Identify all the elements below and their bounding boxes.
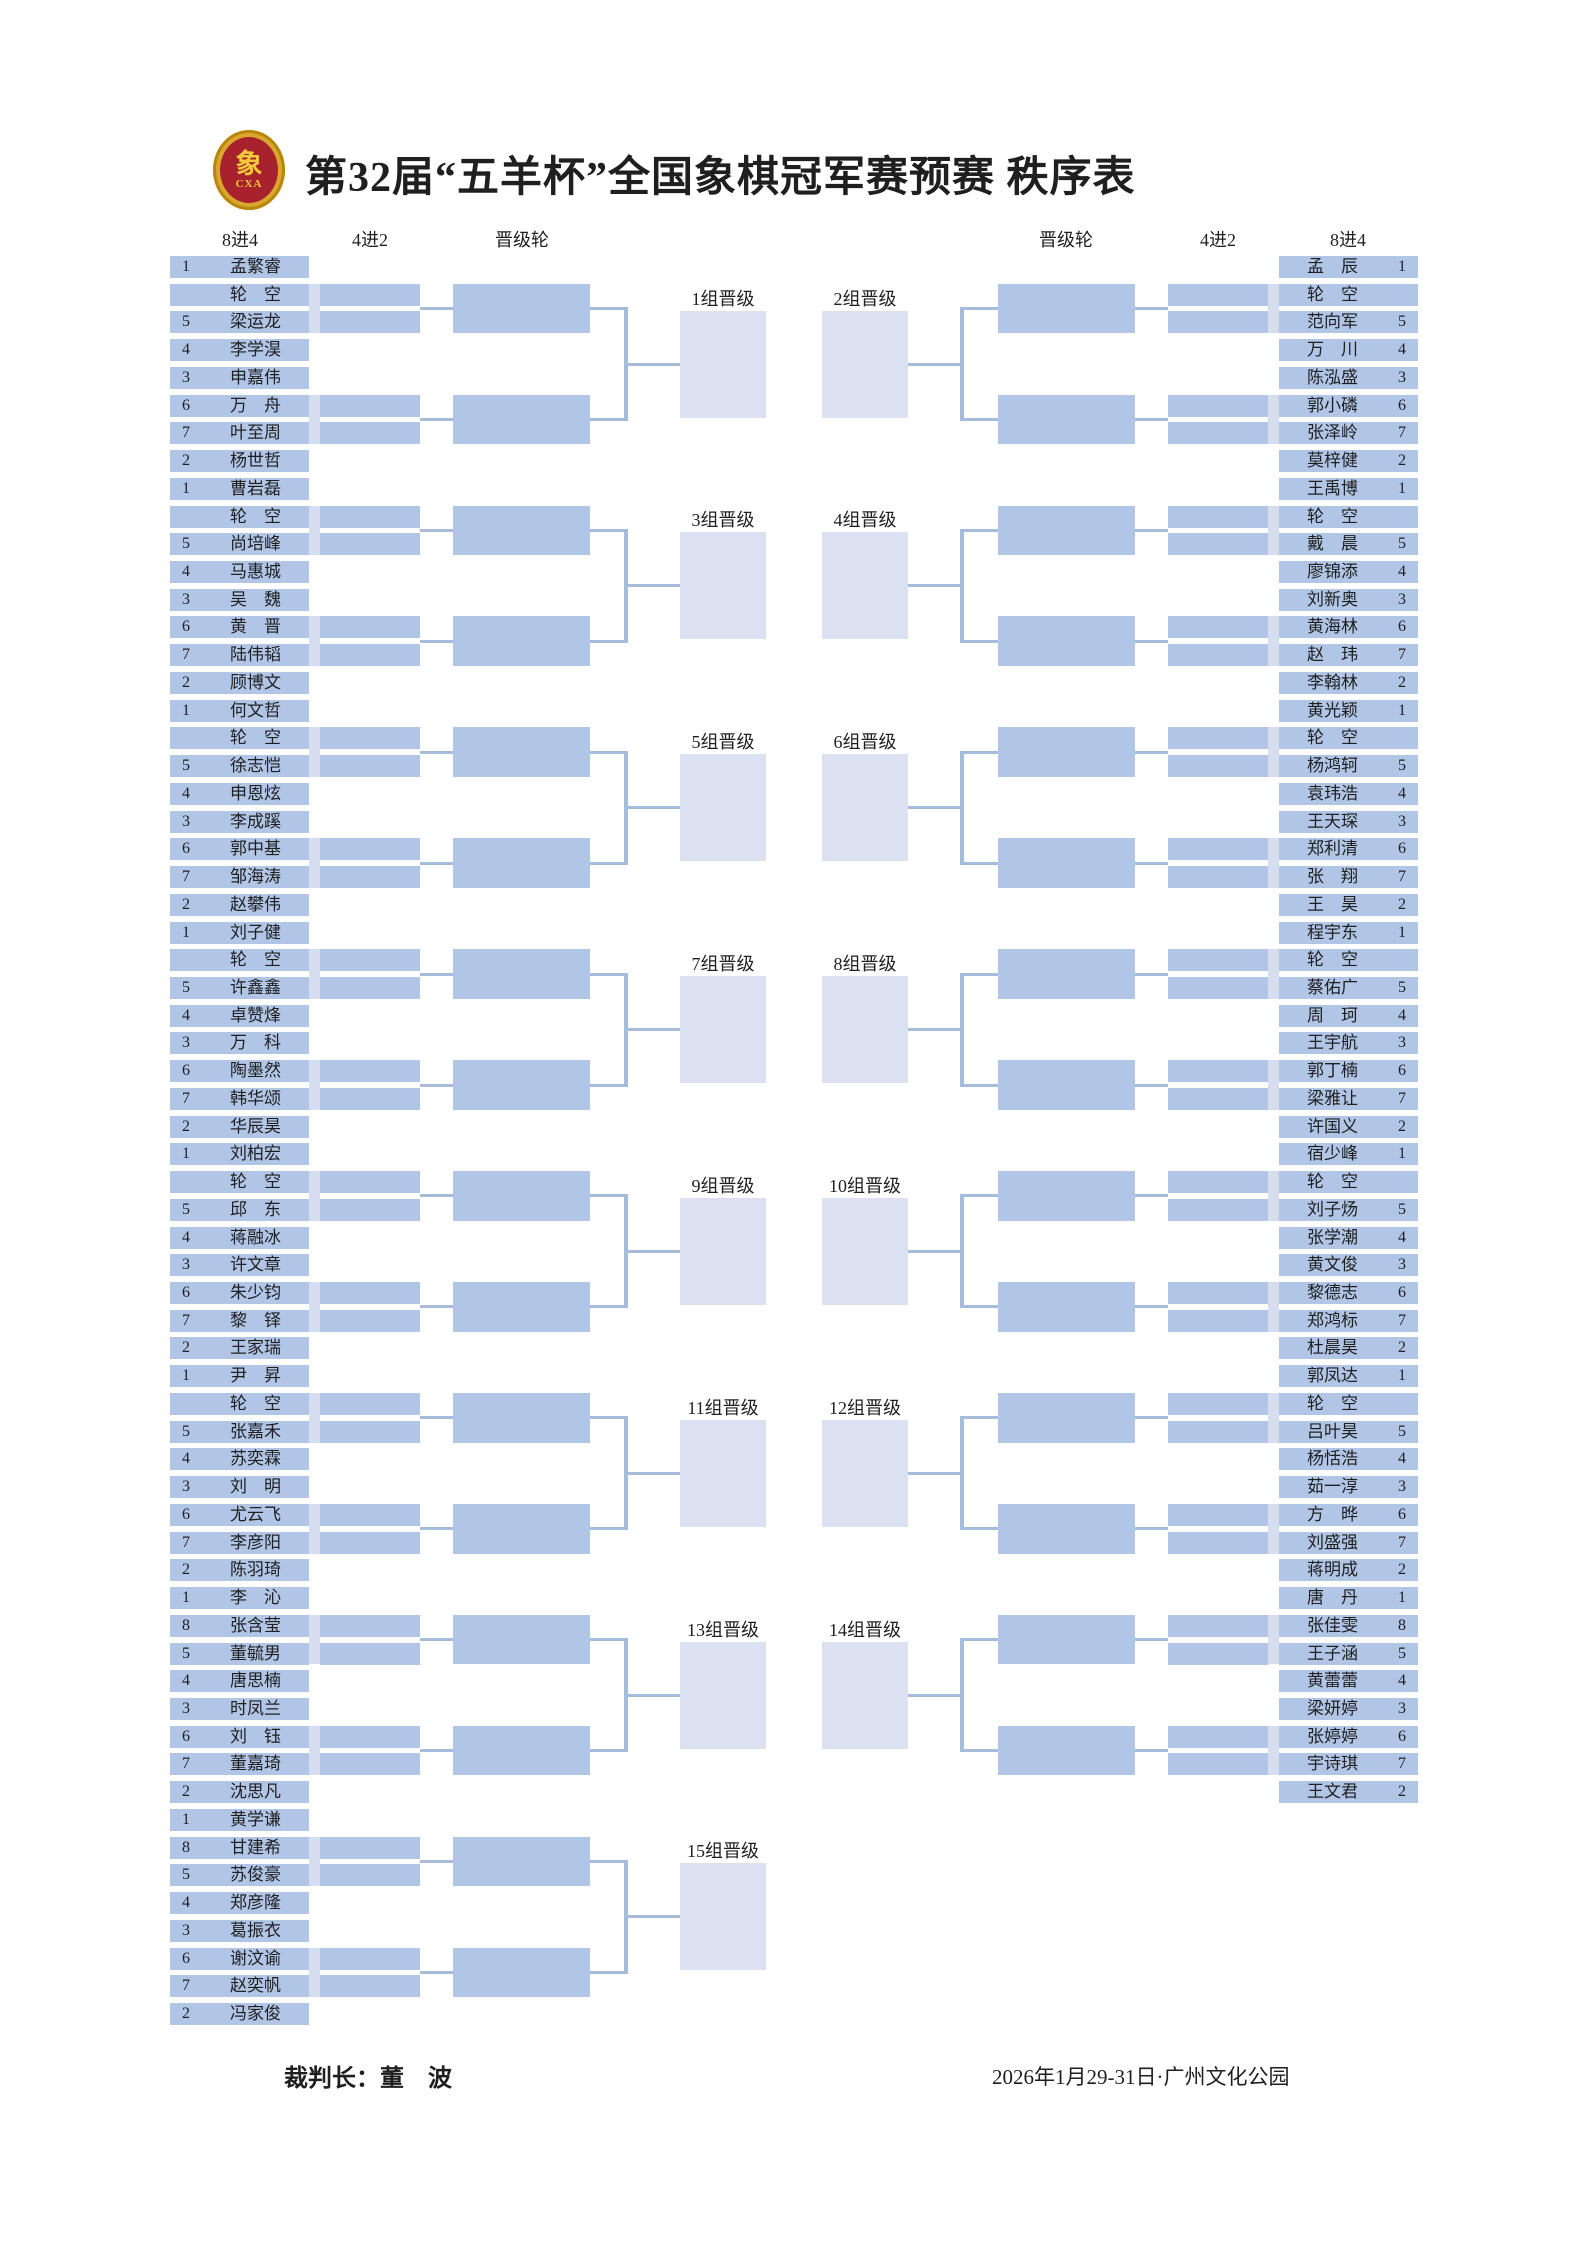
player-cell: 轮 空 [1279,1393,1418,1415]
seed-number: 5 [1386,1421,1418,1443]
pair-boundary-line [420,1305,453,1308]
player-cell: 范向军5 [1279,311,1418,333]
player-cell: 6万 舟 [170,395,309,417]
player-cell: 3吴 魏 [170,589,309,611]
player-cell: 蔡佑广5 [1279,977,1418,999]
round2-bar [320,1282,420,1304]
player-name: 华辰昊 [202,1116,309,1138]
round2-bar [320,284,420,306]
seed-number: 5 [1386,533,1418,555]
player-cell: 唐 丹1 [1279,1587,1418,1609]
semi-connector-line [960,418,998,421]
pair-boundary-line [1135,1749,1168,1752]
semi-connector-line [590,1416,628,1419]
seed-number: 1 [1386,256,1418,278]
player-name: 唐思楠 [202,1670,309,1692]
pair-boundary-line [1135,973,1168,976]
semi-connector-line [960,1527,998,1530]
player-name: 谢汶谕 [202,1948,309,1970]
box-connector-line [908,1694,960,1697]
semi-connector-line [960,1305,998,1308]
seed-number: 7 [1386,866,1418,888]
seed-number: 8 [1386,1615,1418,1637]
round3-bar [453,1837,590,1887]
pair-connector-stub [309,1393,320,1443]
pair-connector-stub [1268,616,1279,666]
seed-number: 4 [1386,1005,1418,1027]
round3-bar [453,506,590,556]
round2-bar [320,866,420,888]
box-connector-line [628,584,680,587]
player-cell: 郭小磷6 [1279,395,1418,417]
box-connector-line [908,1250,960,1253]
seed-number: 3 [170,367,202,389]
player-name: 轮 空 [202,506,309,528]
box-connector-line [628,1250,680,1253]
player-cell: 袁玮浩4 [1279,783,1418,805]
round2-bar [320,506,420,528]
player-cell: 王宇航3 [1279,1032,1418,1054]
player-name: 张 翔 [1279,866,1386,888]
player-name: 万 科 [202,1032,309,1054]
round2-bar [1168,1199,1268,1221]
seed-number: 6 [1386,838,1418,860]
player-cell: 7董嘉琦 [170,1753,309,1775]
pair-boundary-line [420,529,453,532]
round3-bar [453,727,590,777]
seed-number: 5 [170,977,202,999]
player-cell: 轮 空 [170,727,309,749]
header-right-8to4: 8进4 [1330,226,1366,252]
player-cell: 3时凤兰 [170,1698,309,1720]
seed-number: 7 [1386,1753,1418,1775]
pair-boundary-line [1135,307,1168,310]
bracket-vertical-line [960,1638,964,1752]
player-name: 沈思凡 [202,1781,309,1803]
seed-number: 2 [1386,1781,1418,1803]
pair-connector-stub [1268,1615,1279,1665]
player-name: 尤云飞 [202,1504,309,1526]
pair-boundary-line [420,418,453,421]
player-cell: 张 翔7 [1279,866,1418,888]
round2-bar [1168,866,1268,888]
pair-boundary-line [420,1638,453,1641]
player-cell: 2冯家俊 [170,2003,309,2025]
semi-connector-line [960,640,998,643]
round2-bar [1168,1532,1268,1554]
round2-bar [320,1837,420,1859]
player-name: 刘子炀 [1279,1199,1386,1221]
seed-number: 7 [1386,1532,1418,1554]
seed-number: 3 [1386,1698,1418,1720]
round2-bar [1168,1421,1268,1443]
player-cell: 6黄 晋 [170,616,309,638]
advance-label: 1组晋级 [653,285,793,311]
player-name: 许国义 [1279,1116,1386,1138]
box-connector-line [628,1915,680,1918]
round2-bar [320,838,420,860]
round2-bar [1168,1282,1268,1304]
player-cell: 郭丁楠6 [1279,1060,1418,1082]
player-cell: 6谢汶谕 [170,1948,309,1970]
pair-connector-stub [309,1171,320,1221]
pair-boundary-line [1135,1084,1168,1087]
box-connector-line [908,806,960,809]
player-cell: 6陶墨然 [170,1060,309,1082]
player-cell: 8甘建希 [170,1837,309,1859]
player-cell: 轮 空 [170,506,309,528]
player-cell: 2沈思凡 [170,1781,309,1803]
round3-bar [998,838,1135,888]
player-cell: 4蒋融冰 [170,1227,309,1249]
box-connector-line [908,1028,960,1031]
player-name: 黄 晋 [202,616,309,638]
round2-bar [1168,506,1268,528]
player-name: 许鑫鑫 [202,977,309,999]
player-name: 王子涵 [1279,1643,1386,1665]
player-cell: 周 珂4 [1279,1005,1418,1027]
player-cell: 轮 空 [1279,284,1418,306]
advance-box [680,1642,766,1749]
round2-bar [320,727,420,749]
round2-bar [1168,1060,1268,1082]
player-cell: 1黄学谦 [170,1809,309,1831]
pair-connector-stub [309,284,320,334]
player-name: 杨世哲 [202,450,309,472]
player-name: 轮 空 [202,284,309,306]
advance-box [680,532,766,639]
player-name: 黎德志 [1279,1282,1386,1304]
player-cell: 6朱少钧 [170,1282,309,1304]
round3-bar [453,1171,590,1221]
player-cell: 王禹博1 [1279,478,1418,500]
player-name: 宇诗琪 [1279,1753,1386,1775]
advance-label: 10组晋级 [795,1172,935,1198]
pair-boundary-line [420,307,453,310]
seed-number: 5 [1386,311,1418,333]
player-cell: 7陆伟韬 [170,644,309,666]
player-name: 郑鸿标 [1279,1310,1386,1332]
seed-number: 7 [170,1310,202,1332]
seed-number: 3 [1386,1254,1418,1276]
advance-label: 4组晋级 [795,506,935,532]
player-name: 宿少峰 [1279,1143,1386,1165]
round3-bar [998,284,1135,334]
pair-connector-stub [309,1837,320,1887]
advance-label: 6组晋级 [795,728,935,754]
round3-bar [998,616,1135,666]
player-name: 董嘉琦 [202,1753,309,1775]
pair-boundary-line [1135,1638,1168,1641]
advance-box [680,754,766,861]
player-name: 李成蹊 [202,811,309,833]
pair-boundary-line [1135,1416,1168,1419]
seed-number: 6 [170,1726,202,1748]
player-cell: 杜晨昊2 [1279,1337,1418,1359]
player-name: 黄海林 [1279,616,1386,638]
player-name: 轮 空 [1279,949,1386,971]
pair-boundary-line [420,1860,453,1863]
advance-label: 3组晋级 [653,506,793,532]
semi-connector-line [960,1416,998,1419]
round2-bar [320,1060,420,1082]
round2-bar [1168,1171,1268,1193]
round2-bar [1168,284,1268,306]
seed-number: 2 [170,1781,202,1803]
seed-number: 6 [170,1282,202,1304]
advance-box [822,532,908,639]
pair-connector-stub [309,616,320,666]
advance-box [680,1863,766,1970]
player-cell: 陈泓盛3 [1279,367,1418,389]
player-name: 赵 玮 [1279,644,1386,666]
seed-number: 3 [1386,589,1418,611]
player-cell: 3刘 明 [170,1476,309,1498]
player-cell: 1孟繁睿 [170,256,309,278]
player-cell: 莫梓健2 [1279,450,1418,472]
seed-number: 1 [170,256,202,278]
player-name: 申嘉伟 [202,367,309,389]
player-cell: 吕叶昊5 [1279,1421,1418,1443]
seed-number: 3 [170,811,202,833]
seed-number: 6 [1386,1726,1418,1748]
player-name: 苏奕霖 [202,1448,309,1470]
player-cell: 1何文哲 [170,700,309,722]
semi-connector-line [960,973,998,976]
player-cell: 李翰林2 [1279,672,1418,694]
seed-number: 2 [170,1559,202,1581]
pair-connector-stub [309,1948,320,1998]
player-name: 陶墨然 [202,1060,309,1082]
pair-boundary-line [1135,1527,1168,1530]
seed-number: 2 [1386,1559,1418,1581]
seed-number: 4 [170,1227,202,1249]
round3-bar [453,1948,590,1998]
round2-bar [1168,1643,1268,1665]
seed-number: 4 [170,561,202,583]
semi-connector-line [960,529,998,532]
semi-connector-line [960,1638,998,1641]
player-cell: 轮 空 [1279,949,1418,971]
round2-bar [1168,1310,1268,1332]
player-name: 王宇航 [1279,1032,1386,1054]
pair-connector-stub [309,1615,320,1665]
player-name: 袁玮浩 [1279,783,1386,805]
cxa-logo-inner: 象 CXA [220,137,278,203]
semi-connector-line [590,418,628,421]
pair-connector-stub [309,1726,320,1776]
seed-number: 6 [170,1504,202,1526]
player-name: 蔡佑广 [1279,977,1386,999]
page-title: 第32届“五羊杯”全国象棋冠军赛预赛 秩序表 [305,143,1285,204]
player-name: 李学淏 [202,339,309,361]
pair-boundary-line [420,1416,453,1419]
round2-bar [320,1199,420,1221]
player-name: 徐志恺 [202,755,309,777]
seed-number: 6 [170,1060,202,1082]
round3-bar [998,727,1135,777]
round2-bar [320,755,420,777]
player-name: 刘 明 [202,1476,309,1498]
round2-bar [320,1975,420,1997]
player-name: 郭中基 [202,838,309,860]
player-name: 黄学谦 [202,1809,309,1831]
player-name: 万 舟 [202,395,309,417]
player-cell: 黄蕾蕾4 [1279,1670,1418,1692]
player-cell: 茹一淳3 [1279,1476,1418,1498]
player-cell: 6郭中基 [170,838,309,860]
semi-connector-line [590,1749,628,1752]
advance-box [680,1420,766,1527]
seed-number: 2 [170,672,202,694]
seed-number: 6 [1386,1504,1418,1526]
pair-connector-stub [309,1282,320,1332]
seed-number: 7 [170,644,202,666]
seed-number: 7 [170,1532,202,1554]
pair-connector-stub [309,1504,320,1554]
player-name: 方 晔 [1279,1504,1386,1526]
cxa-logo: 象 CXA [213,130,285,210]
seed-number: 5 [170,1864,202,1886]
player-cell: 3葛振衣 [170,1920,309,1942]
pair-connector-stub [309,506,320,556]
seed-number: 6 [1386,616,1418,638]
seed-number: 1 [170,700,202,722]
player-cell: 王天琛3 [1279,811,1418,833]
player-cell: 杨鸿轲5 [1279,755,1418,777]
round2-bar [320,533,420,555]
pair-boundary-line [420,1194,453,1197]
player-cell: 张婷婷6 [1279,1726,1418,1748]
box-connector-line [628,1472,680,1475]
seed-number: 6 [1386,395,1418,417]
round3-bar [998,1171,1135,1221]
player-name: 轮 空 [1279,727,1386,749]
player-cell: 5许鑫鑫 [170,977,309,999]
round2-bar [1168,949,1268,971]
player-name: 刘新奥 [1279,589,1386,611]
pair-connector-stub [309,949,320,999]
player-cell: 轮 空 [170,949,309,971]
pair-connector-stub [1268,1726,1279,1776]
player-name: 黄文俊 [1279,1254,1386,1276]
semi-connector-line [960,1749,998,1752]
player-name: 陆伟韬 [202,644,309,666]
pair-boundary-line [1135,418,1168,421]
seed-number: 7 [170,866,202,888]
player-name: 刘子健 [202,922,309,944]
seed-number: 5 [170,755,202,777]
seed-number: 4 [1386,339,1418,361]
player-cell: 4马惠城 [170,561,309,583]
xiang-glyph: 象 [236,150,263,178]
player-cell: 赵 玮7 [1279,644,1418,666]
advance-label: 2组晋级 [795,285,935,311]
box-connector-line [628,806,680,809]
player-cell: 梁雅让7 [1279,1088,1418,1110]
player-name: 吴 魏 [202,589,309,611]
seed-number: 7 [170,1088,202,1110]
semi-connector-line [590,1527,628,1530]
header-left-4to2: 4进2 [352,226,388,252]
advance-box [822,976,908,1083]
player-name: 张泽岭 [1279,422,1386,444]
player-cell: 蒋明成2 [1279,1559,1418,1581]
player-name: 郭丁楠 [1279,1060,1386,1082]
player-cell: 黎德志6 [1279,1282,1418,1304]
player-name: 马惠城 [202,561,309,583]
player-cell: 宇诗琪7 [1279,1753,1418,1775]
pair-connector-stub [309,395,320,445]
player-cell: 许国义2 [1279,1116,1418,1138]
round2-bar [1168,1088,1268,1110]
player-name: 卓赞烽 [202,1005,309,1027]
seed-number: 4 [170,339,202,361]
player-name: 时凤兰 [202,1698,309,1720]
seed-number: 1 [1386,1587,1418,1609]
round2-bar [320,1643,420,1665]
player-cell: 3许文章 [170,1254,309,1276]
bracket-vertical-line [960,307,964,421]
seed-number: 2 [170,1116,202,1138]
seed-number: 1 [170,922,202,944]
round3-bar [453,284,590,334]
player-name: 王家瑞 [202,1337,309,1359]
bracket-vertical-line [960,751,964,865]
bracket-vertical-line [960,1416,964,1530]
semi-connector-line [590,1971,628,1974]
player-cell: 刘子炀5 [1279,1199,1418,1221]
player-name: 王天琛 [1279,811,1386,833]
seed-number: 6 [1386,1282,1418,1304]
player-cell: 7李彦阳 [170,1532,309,1554]
semi-connector-line [590,1305,628,1308]
player-cell: 5梁运龙 [170,311,309,333]
seed-number: 4 [170,1670,202,1692]
semi-connector-line [960,751,998,754]
seed-number: 4 [1386,561,1418,583]
round2-bar [320,644,420,666]
round2-bar [320,949,420,971]
advance-box [822,311,908,418]
player-cell: 5徐志恺 [170,755,309,777]
round3-bar [998,1504,1135,1554]
player-name: 蒋明成 [1279,1559,1386,1581]
pair-boundary-line [420,1084,453,1087]
seed-number: 4 [170,783,202,805]
player-cell: 张佳雯8 [1279,1615,1418,1637]
seed-number: 1 [170,1143,202,1165]
round3-bar [998,506,1135,556]
player-name: 吕叶昊 [1279,1421,1386,1443]
player-name: 孟 辰 [1279,256,1386,278]
advance-box [680,976,766,1083]
semi-connector-line [960,1194,998,1197]
seed-number: 4 [170,1005,202,1027]
semi-connector-line [590,1194,628,1197]
seed-number: 4 [1386,1448,1418,1470]
round2-bar [320,1532,420,1554]
player-name: 轮 空 [1279,1393,1386,1415]
seed-number: 1 [170,1587,202,1609]
box-connector-line [628,1028,680,1031]
round2-bar [320,1421,420,1443]
player-name: 葛振衣 [202,1920,309,1942]
seed-number: 4 [1386,1670,1418,1692]
pair-connector-stub [1268,1393,1279,1443]
player-cell: 轮 空 [1279,727,1418,749]
player-name: 轮 空 [202,727,309,749]
